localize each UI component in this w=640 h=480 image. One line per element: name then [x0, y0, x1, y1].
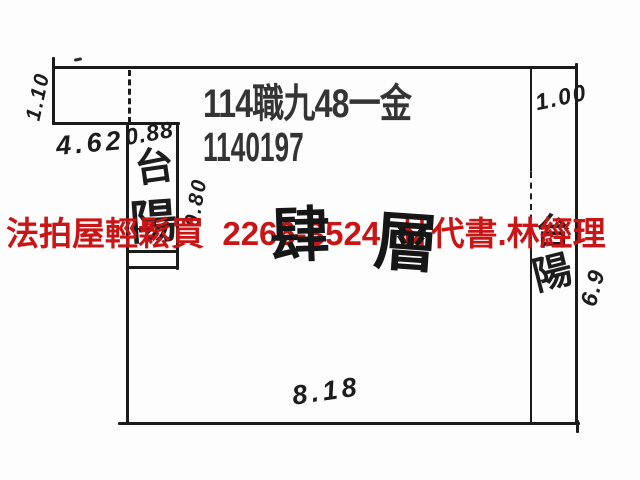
wall-notch-dashed-edge [128, 70, 131, 123]
pen-smudge [74, 57, 82, 62]
measurement-right-strip-length: 6.9 [575, 259, 611, 315]
wall-top-edge [53, 66, 578, 69]
measurement-top-left-width: 4.62 [55, 127, 126, 160]
scanned-floor-plan-page: 114職九48一金 1140197 肆 層 台 陽 台 陽 1.10 4.62 … [0, 0, 640, 480]
wall-left-strip-cross-lower [126, 266, 179, 269]
case-number-line1: 114職九48一金 [203, 84, 411, 124]
case-number-line2: 1140197 [203, 127, 304, 168]
floor-stamp-char2: 層 [372, 210, 440, 278]
measurement-right-strip-width: 1.00 [533, 81, 589, 114]
measurement-top-left-vertical: 1.10 [22, 69, 53, 124]
left-balcony-char-top: 台 [132, 145, 176, 189]
wall-right-strip-inner-top [530, 68, 532, 172]
wall-left-edge [126, 122, 129, 425]
right-balcony-char-bottom: 陽 [529, 250, 576, 297]
measurement-bottom-width: 8.18 [290, 373, 362, 409]
floor-stamp-char1: 肆 [269, 205, 331, 267]
wall-bottom-edge [118, 422, 580, 425]
